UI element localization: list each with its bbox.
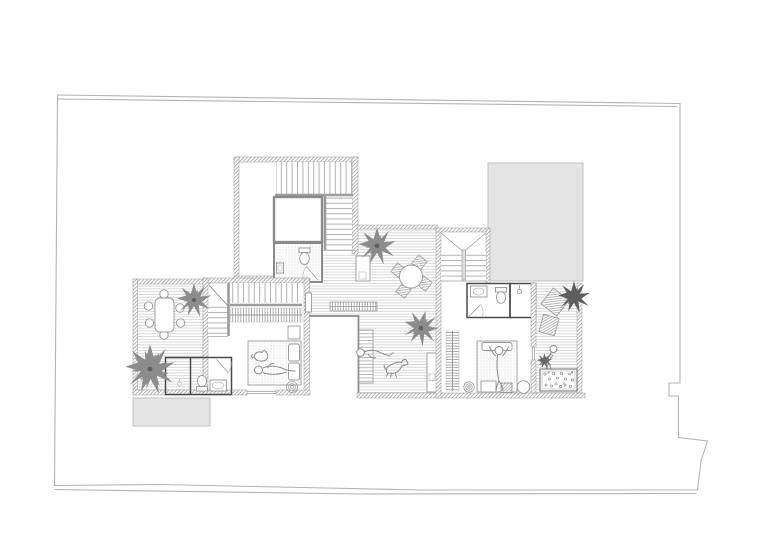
tower-stair-right-run — [326, 197, 352, 250]
right-bedroom-right-wall-b — [531, 360, 536, 393]
wall-cabinet — [427, 353, 437, 392]
terrace-parapet-bottom — [357, 393, 585, 398]
terrace-parapet-top — [357, 225, 438, 229]
dining-chair — [145, 319, 153, 327]
pillow — [289, 344, 300, 361]
left-bedroom-slider-door — [247, 391, 276, 393]
stair-room — [441, 233, 486, 281]
right-wardrobe — [446, 331, 459, 391]
terrace-door — [532, 347, 534, 360]
bedside-unit — [288, 326, 300, 339]
left-bathroom-door — [217, 360, 232, 373]
void-box — [274, 197, 322, 242]
pillow — [289, 363, 300, 380]
stair-room-top-wall — [436, 228, 490, 232]
tower-wc-basin — [277, 263, 284, 273]
grey-roof-upper-right — [488, 163, 583, 281]
round-table — [400, 265, 423, 288]
stair-room-right-wall — [486, 228, 490, 283]
round-stool — [517, 381, 530, 394]
right-bathroom-toilet — [496, 288, 507, 304]
left-terrace-top-wall — [133, 279, 210, 284]
dining-chair — [144, 302, 152, 310]
stair-stringer — [462, 250, 466, 280]
dining-chair — [160, 290, 168, 298]
void-gap — [304, 316, 360, 393]
tower-top-wall — [234, 157, 358, 162]
flower-bed — [540, 369, 577, 391]
dining-chair — [176, 319, 184, 327]
terrace-planter-box — [356, 256, 370, 281]
left-bathroom-toilet — [197, 375, 208, 391]
wall-unit-on-deck — [306, 293, 312, 312]
boundary-inner-top-line — [58, 99, 678, 107]
right-bathroom-basin — [471, 286, 488, 297]
right-bathroom — [467, 284, 510, 318]
right-bedroom-right-wall-a — [531, 283, 536, 347]
tower-wc-toilet — [299, 248, 310, 265]
right-block-left-wall — [436, 228, 441, 398]
floor-plan-drawing — [0, 0, 780, 551]
floor-plan-canvas — [0, 0, 780, 551]
oval-dining-table — [155, 298, 174, 332]
shower-head-icon — [517, 289, 521, 293]
grey-roof-lower-left — [133, 398, 210, 426]
spiral-mat-right — [464, 382, 474, 392]
left-wardrobe — [230, 308, 302, 322]
left-bathroom-basin — [210, 380, 227, 391]
slatted-bench — [330, 302, 377, 311]
right-bathroom-door — [469, 305, 483, 317]
stair-break-line — [209, 285, 228, 306]
tower-stair-upper-run — [276, 162, 352, 194]
tower-left-wall — [234, 157, 239, 280]
left-bedroom-top-wall — [203, 278, 310, 283]
tower-right-wall — [352, 157, 358, 254]
foot-bench — [481, 381, 496, 392]
left-bed — [248, 341, 301, 385]
